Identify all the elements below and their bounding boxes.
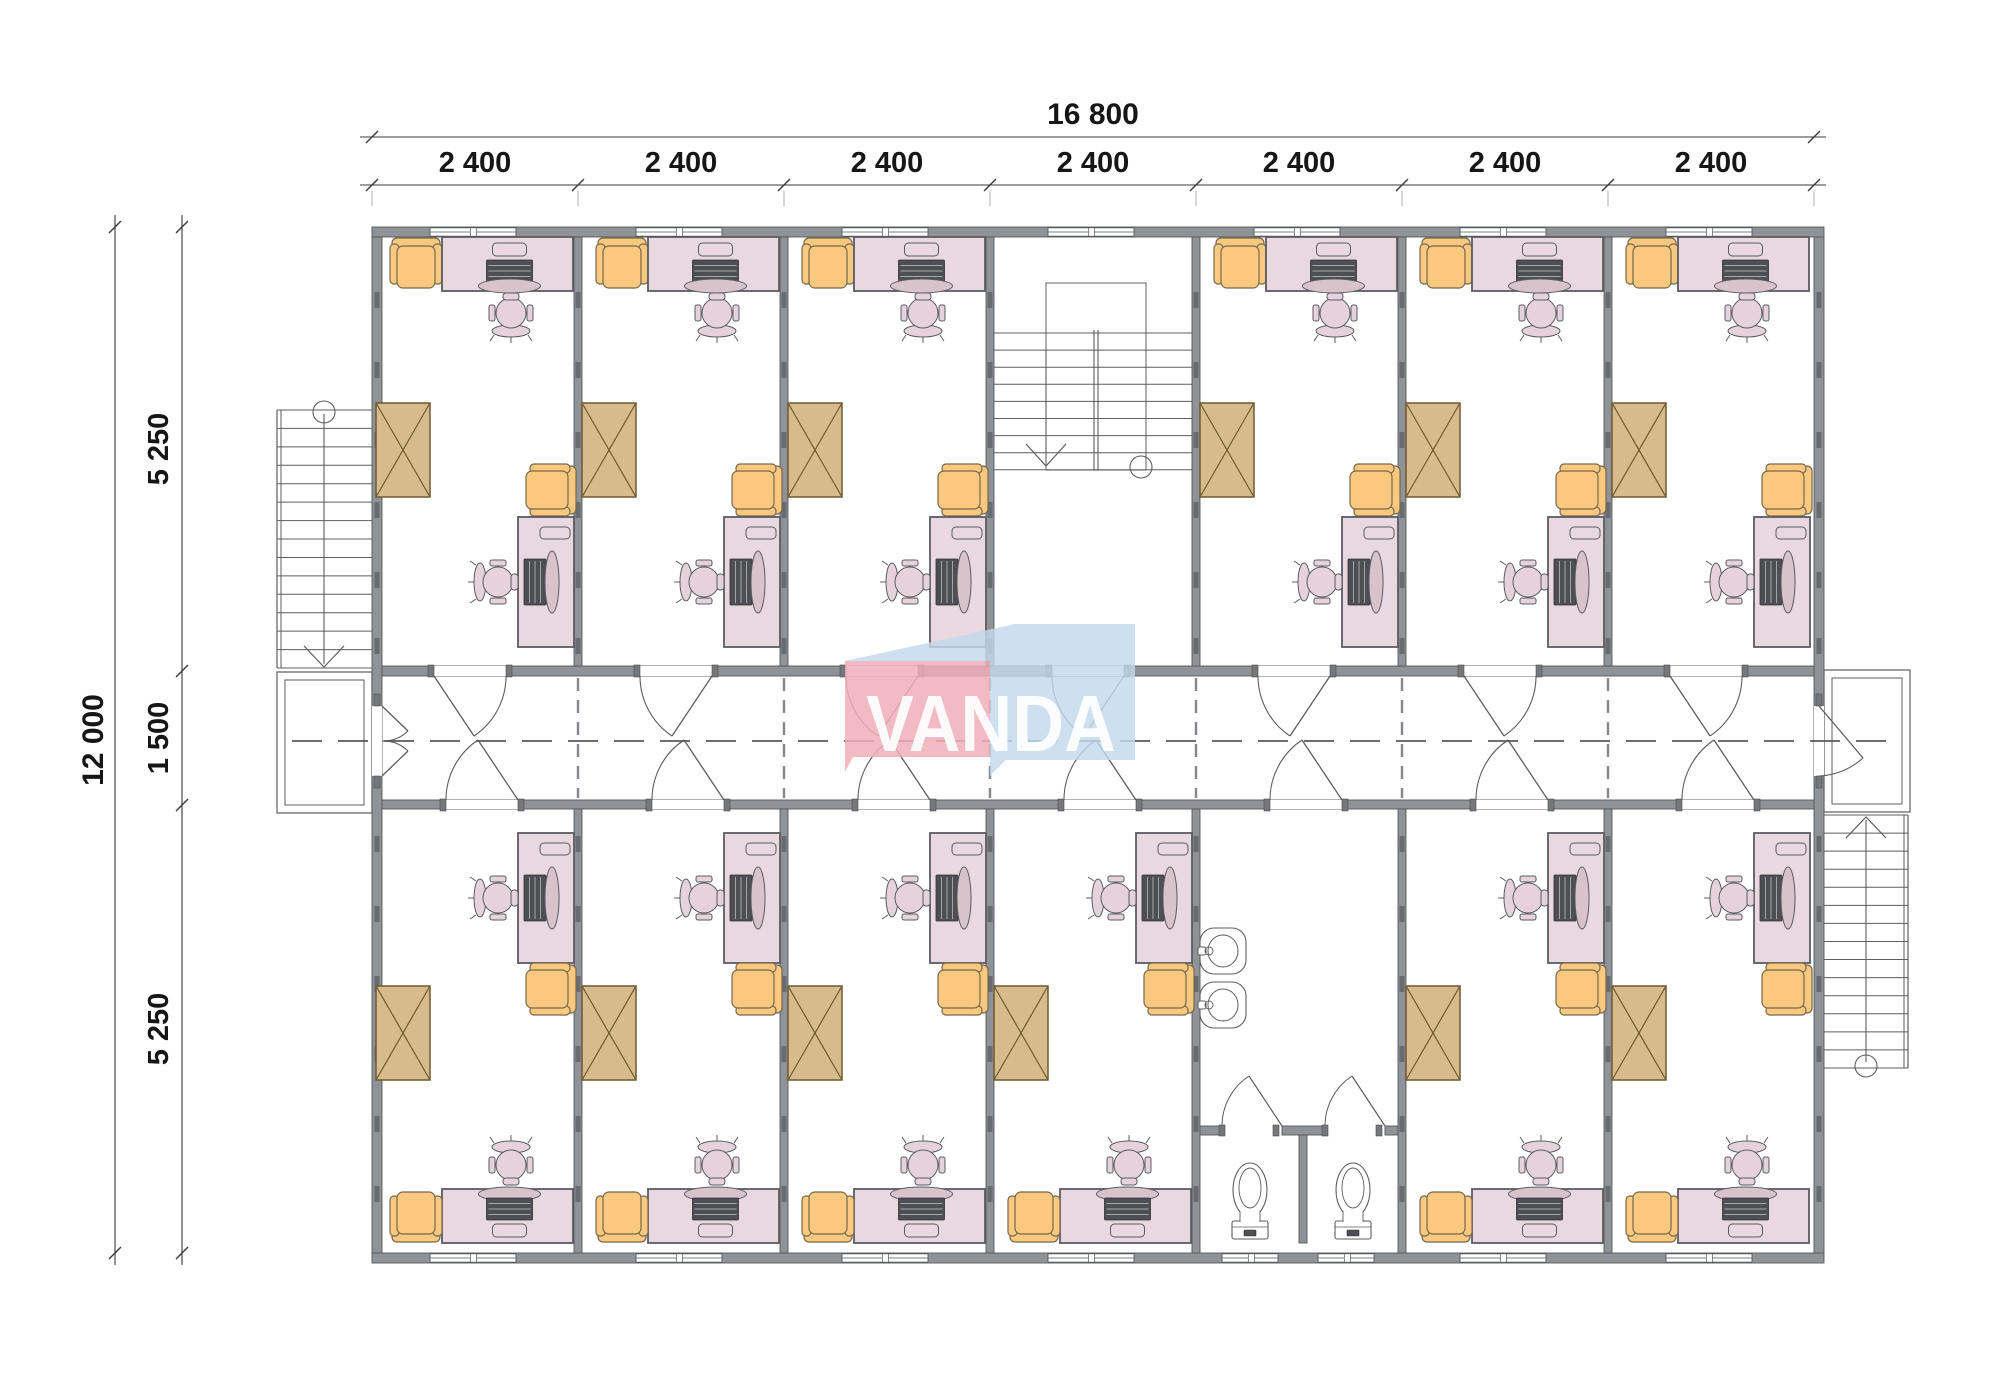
wall-joint-mark	[1194, 1186, 1199, 1202]
keyboard	[524, 875, 546, 921]
wall-joint-mark	[1194, 362, 1199, 378]
office-chair	[1519, 293, 1563, 343]
keyboard	[936, 875, 958, 921]
door-jamb	[1058, 799, 1064, 811]
door-opening	[652, 800, 724, 809]
door-swing-arc	[640, 676, 672, 736]
door-jamb	[1754, 799, 1760, 811]
computer-tower	[699, 243, 733, 256]
wall-joint-mark	[375, 502, 380, 518]
wall-joint-mark	[1194, 292, 1199, 308]
keyboard	[1105, 1198, 1151, 1220]
wall-joint-mark	[1817, 638, 1822, 654]
wall-joint-mark	[1817, 1046, 1822, 1062]
wall-joint-mark	[375, 292, 380, 308]
door-jamb	[1816, 694, 1822, 706]
wall-joint-mark	[375, 836, 380, 852]
computer-tower	[1158, 843, 1188, 855]
wall-joint-mark	[1606, 906, 1611, 922]
wall-joint-mark	[988, 1116, 993, 1132]
door-opening	[1670, 666, 1742, 676]
door-swing-arc	[382, 741, 408, 751]
wall-joint-mark	[1400, 362, 1405, 378]
computer-tower	[952, 527, 982, 539]
door-leaf	[1302, 740, 1342, 800]
armchair	[526, 963, 576, 1015]
door-swing-arc	[1325, 1076, 1352, 1126]
wall-joint-mark	[1817, 502, 1822, 518]
door-jamb	[1816, 776, 1822, 788]
desk	[930, 833, 986, 963]
armchair	[938, 464, 988, 516]
office-chair	[1292, 560, 1342, 604]
computer-tower	[952, 843, 982, 855]
wall-joint-mark	[782, 1116, 787, 1132]
wall-joint-mark	[988, 432, 993, 448]
floor-plan-drawing: 16 8002 4002 4002 4002 4002 4002 4002 40…	[0, 0, 2000, 1380]
door-opening	[1464, 666, 1536, 676]
office-chair	[1519, 1135, 1563, 1185]
keyboard	[1554, 875, 1576, 921]
armchair	[1626, 238, 1678, 288]
desk	[1060, 1187, 1191, 1243]
office-chair	[1086, 876, 1136, 920]
door-swing-arc	[1258, 676, 1290, 736]
cabinet	[1406, 403, 1460, 497]
wall-joint-mark	[1817, 362, 1822, 378]
door-leaf	[1290, 676, 1330, 736]
office-room	[994, 833, 1194, 1243]
door-leaf	[1508, 740, 1548, 800]
office-room	[376, 237, 576, 647]
armchair	[1556, 963, 1606, 1015]
door-leaf	[382, 751, 408, 776]
wall-joint-mark	[1194, 638, 1199, 654]
keyboard	[1760, 559, 1782, 605]
door-leaf	[672, 676, 712, 736]
wall-joint-mark	[576, 638, 581, 654]
desk	[1266, 237, 1397, 293]
door-jamb	[1742, 665, 1748, 677]
computer-tower	[699, 1224, 733, 1237]
dimension-left-total-label: 12 000	[77, 694, 110, 786]
office-chair	[901, 1135, 945, 1185]
monitor	[1781, 551, 1795, 613]
keyboard	[730, 559, 752, 605]
desk	[648, 1187, 779, 1243]
wall-joint-mark	[1400, 292, 1405, 308]
stair-post-marker	[1130, 456, 1152, 478]
computer-tower	[1364, 527, 1394, 539]
armchair	[1420, 1192, 1472, 1242]
armchair	[1144, 963, 1194, 1015]
door-jamb	[1376, 1125, 1382, 1136]
door-jamb	[1470, 799, 1476, 811]
office-room	[1406, 237, 1606, 647]
door-leaf	[1670, 676, 1710, 736]
monitor	[545, 867, 559, 929]
armchair	[732, 963, 782, 1015]
desk	[1472, 1187, 1603, 1243]
door-jamb	[518, 799, 524, 811]
office-room	[788, 833, 988, 1243]
door-leaf	[684, 740, 724, 800]
stall-wall	[1282, 1126, 1325, 1135]
computer-tower	[540, 843, 570, 855]
computer-tower	[746, 527, 776, 539]
wall-joint-mark	[1606, 572, 1611, 588]
wall-joint-mark	[782, 572, 787, 588]
wall-joint-mark	[1400, 572, 1405, 588]
window-mullion	[470, 1254, 476, 1262]
door-opening	[1270, 800, 1342, 809]
office-room	[1406, 833, 1606, 1243]
window-mullion	[676, 1254, 682, 1262]
office-chair	[1704, 560, 1754, 604]
door-opening	[1682, 800, 1754, 809]
window-mullion	[1294, 228, 1300, 236]
wall-joint-mark	[782, 638, 787, 654]
door-jamb	[428, 665, 434, 677]
office-chair	[880, 876, 930, 920]
door-jamb	[1219, 1125, 1225, 1136]
monitor	[957, 551, 971, 613]
wall-joint-mark	[988, 1186, 993, 1202]
keyboard	[1142, 875, 1164, 921]
computer-tower	[1523, 243, 1557, 256]
office-chair	[1313, 293, 1357, 343]
monitor	[1781, 867, 1795, 929]
computer-tower	[746, 843, 776, 855]
cabinet	[1612, 403, 1666, 497]
wall-joint-mark	[576, 906, 581, 922]
wall-joint-mark	[1817, 432, 1822, 448]
armchair	[390, 1192, 442, 1242]
door-leaf	[1819, 706, 1863, 758]
entry-landing-left	[277, 672, 372, 813]
desk	[854, 1187, 985, 1243]
office-chair	[489, 293, 533, 343]
office-chair	[695, 1135, 739, 1185]
toilet	[1335, 1163, 1371, 1239]
desk	[1754, 833, 1810, 963]
armchair	[938, 963, 988, 1015]
wall-joint-mark	[1606, 1116, 1611, 1132]
wall-joint-mark	[576, 1116, 581, 1132]
dimension-bay-label: 2 400	[645, 147, 718, 179]
logo-text: VANDA	[866, 679, 1116, 768]
cabinet	[788, 986, 842, 1080]
cabinet	[1406, 986, 1460, 1080]
armchair	[1762, 464, 1812, 516]
cabinet	[582, 986, 636, 1080]
armchair	[802, 1192, 854, 1242]
door-swing-arc	[1682, 740, 1714, 800]
wall-joint-mark	[782, 836, 787, 852]
cabinet	[376, 403, 430, 497]
office-chair	[1725, 1135, 1769, 1185]
cabinet	[994, 986, 1048, 1080]
monitor	[685, 279, 747, 293]
wall-joint-mark	[1817, 292, 1822, 308]
door-jamb	[374, 776, 380, 788]
monitor	[1163, 867, 1177, 929]
keyboard	[524, 559, 546, 605]
desk	[854, 237, 985, 293]
office-chair	[468, 876, 518, 920]
door-jamb	[1664, 665, 1670, 677]
dimension-bay-label: 2 400	[1675, 147, 1748, 179]
monitor	[1575, 551, 1589, 613]
door-swing-arc	[1222, 1076, 1249, 1126]
door-leaf	[382, 706, 408, 731]
door-swing-arc	[474, 676, 506, 736]
door-jamb	[1252, 665, 1258, 677]
dimension-top-total-label: 16 800	[1047, 98, 1139, 131]
sink	[1198, 982, 1246, 1028]
monitor	[957, 867, 971, 929]
armchair	[1762, 963, 1812, 1015]
door-jamb	[1273, 1125, 1279, 1136]
door-jamb	[712, 665, 718, 677]
desk	[1136, 833, 1192, 963]
wall-joint-mark	[782, 1186, 787, 1202]
dimension-segment-label: 5 250	[143, 993, 175, 1066]
desk	[930, 517, 986, 647]
dimension-segment-label: 5 250	[143, 413, 175, 486]
wall-joint-mark	[576, 1046, 581, 1062]
desk	[442, 1187, 573, 1243]
door-jamb	[1322, 1125, 1328, 1136]
door-jamb	[1458, 665, 1464, 677]
wall-joint-mark	[988, 1046, 993, 1062]
desk	[1678, 237, 1809, 293]
computer-tower	[1570, 527, 1600, 539]
window-mullion	[1248, 1254, 1254, 1262]
toilet-bowl	[1336, 1163, 1370, 1217]
monitor	[751, 551, 765, 613]
office-chair	[1107, 1135, 1151, 1185]
office-room	[376, 833, 576, 1243]
door-swing-arc	[1819, 758, 1863, 776]
desk	[648, 237, 779, 293]
armchair	[596, 1192, 648, 1242]
window-mullion	[1500, 228, 1506, 236]
wall-joint-mark	[375, 572, 380, 588]
desk	[1678, 1187, 1809, 1243]
wall-joint-mark	[1400, 1186, 1405, 1202]
cabinet	[788, 403, 842, 497]
wall-joint-mark	[1606, 1186, 1611, 1202]
office-room	[1200, 237, 1400, 647]
computer-tower	[1776, 527, 1806, 539]
wall-joint-mark	[1400, 1046, 1405, 1062]
armchair	[1626, 1192, 1678, 1242]
wall-joint-mark	[576, 362, 581, 378]
stair-opening-outline	[1046, 283, 1146, 470]
monitor	[1575, 867, 1589, 929]
wall-joint-mark	[1400, 638, 1405, 654]
dimension-bay-label: 2 400	[851, 147, 924, 179]
stall-wall	[1385, 1126, 1398, 1135]
keyboard	[1723, 1198, 1769, 1220]
armchair	[1008, 1192, 1060, 1242]
office-chair	[1498, 876, 1548, 920]
armchair	[1420, 238, 1472, 288]
door-swing-arc	[1476, 740, 1508, 800]
wall-joint-mark	[375, 1186, 380, 1202]
office-room	[1612, 237, 1812, 647]
wall-joint-mark	[1606, 836, 1611, 852]
monitor	[479, 279, 541, 293]
dimension-bay-label: 2 400	[439, 147, 512, 179]
wall-joint-mark	[375, 906, 380, 922]
office-chair	[901, 293, 945, 343]
wall-joint-mark	[1194, 1116, 1199, 1132]
wall-joint-mark	[782, 1046, 787, 1062]
office-chair	[468, 560, 518, 604]
toilet	[1232, 1163, 1268, 1239]
office-chair	[489, 1135, 533, 1185]
window-mullion	[882, 1254, 888, 1262]
keyboard	[693, 1198, 739, 1220]
dimension-bay-label: 2 400	[1057, 147, 1130, 179]
monitor	[751, 867, 765, 929]
wall-joint-mark	[1817, 976, 1822, 992]
wall-joint-mark	[1194, 572, 1199, 588]
window-mullion	[882, 228, 888, 236]
computer-tower	[1729, 243, 1763, 256]
monitor	[1369, 551, 1383, 613]
door-jamb	[1676, 799, 1682, 811]
wall-joint-mark	[988, 362, 993, 378]
wall-joint-mark	[1194, 502, 1199, 518]
door-jamb	[852, 799, 858, 811]
office-chair	[674, 560, 724, 604]
toilet-bowl	[1233, 1163, 1267, 1217]
door-leaf	[1352, 1076, 1385, 1126]
door-swing-arc	[1710, 676, 1742, 736]
wall-joint-mark	[1606, 1046, 1611, 1062]
armchair	[1556, 464, 1606, 516]
window-mullion	[470, 228, 476, 236]
computer-tower	[905, 1224, 939, 1237]
door-opening	[1258, 666, 1330, 676]
wall-joint-mark	[1606, 638, 1611, 654]
window-mullion	[1500, 1254, 1506, 1262]
wall-joint-mark	[988, 836, 993, 852]
computer-tower	[1729, 1224, 1763, 1237]
door-jamb	[374, 694, 380, 706]
computer-tower	[1570, 843, 1600, 855]
keyboard	[1348, 559, 1370, 605]
door-jamb	[1342, 799, 1348, 811]
wall-joint-mark	[1606, 432, 1611, 448]
door-jamb	[1264, 799, 1270, 811]
door-jamb	[930, 799, 936, 811]
wall-joint-mark	[1817, 1116, 1822, 1132]
wall-joint-mark	[988, 292, 993, 308]
monitor	[545, 551, 559, 613]
desk	[1754, 517, 1810, 647]
wall-joint-mark	[576, 572, 581, 588]
vanda-logo: VANDA	[845, 624, 1135, 776]
computer-tower	[1523, 1224, 1557, 1237]
door-opening	[446, 800, 518, 809]
wall-joint-mark	[1817, 1186, 1822, 1202]
door-leaf	[1249, 1076, 1282, 1126]
keyboard	[1517, 1198, 1563, 1220]
monitor	[1509, 279, 1571, 293]
office-chair	[1498, 560, 1548, 604]
door-swing-arc	[652, 740, 684, 800]
desk	[724, 833, 780, 963]
wall-joint-mark	[576, 836, 581, 852]
wall-joint-mark	[1194, 836, 1199, 852]
wall-joint-mark	[1817, 906, 1822, 922]
window-mullion	[1088, 228, 1094, 236]
computer-tower	[905, 243, 939, 256]
door-swing-arc	[382, 731, 408, 741]
desk	[518, 517, 574, 647]
office-room	[582, 237, 782, 647]
keyboard	[1760, 875, 1782, 921]
door-jamb	[646, 799, 652, 811]
wall-joint-mark	[988, 906, 993, 922]
wall-joint-mark	[1194, 432, 1199, 448]
wall-joint-mark	[782, 432, 787, 448]
monitor	[1303, 279, 1365, 293]
window-mullion	[1088, 1254, 1094, 1262]
entry-landing-left-inner	[285, 680, 364, 805]
wall-joint-mark	[1194, 906, 1199, 922]
exterior-stairs-left	[277, 401, 372, 813]
desk	[442, 237, 573, 293]
monitor	[1715, 279, 1777, 293]
cabinet	[376, 986, 430, 1080]
office-room	[582, 833, 782, 1243]
exterior-stairs-right	[1824, 670, 1910, 1077]
office-chair	[1704, 876, 1754, 920]
wall-joint-mark	[1400, 836, 1405, 852]
desk	[1548, 833, 1604, 963]
wall-joint-mark	[1400, 432, 1405, 448]
door-opening	[640, 666, 712, 676]
wall-joint-mark	[576, 1186, 581, 1202]
dimension-bay-label: 2 400	[1263, 147, 1336, 179]
desk	[1472, 237, 1603, 293]
wall-joint-mark	[1400, 976, 1405, 992]
wall-joint-mark	[782, 362, 787, 378]
wall-joint-mark	[1817, 836, 1822, 852]
office-chair	[1725, 293, 1769, 343]
computer-tower	[493, 243, 527, 256]
door-opening	[858, 800, 930, 809]
window-mullion	[1344, 1254, 1350, 1262]
wall-joint-mark	[1400, 1116, 1405, 1132]
cabinet	[582, 403, 636, 497]
window-mullion	[676, 228, 682, 236]
dimension-segment-label: 1 500	[143, 702, 175, 775]
door-swing-arc	[446, 740, 478, 800]
door-opening	[434, 666, 506, 676]
desk	[1548, 517, 1604, 647]
door-jamb	[1330, 665, 1336, 677]
wall-joint-mark	[1606, 292, 1611, 308]
dimension-bay-label: 2 400	[1469, 147, 1542, 179]
stairwell	[994, 283, 1192, 478]
computer-tower	[1111, 1224, 1145, 1237]
